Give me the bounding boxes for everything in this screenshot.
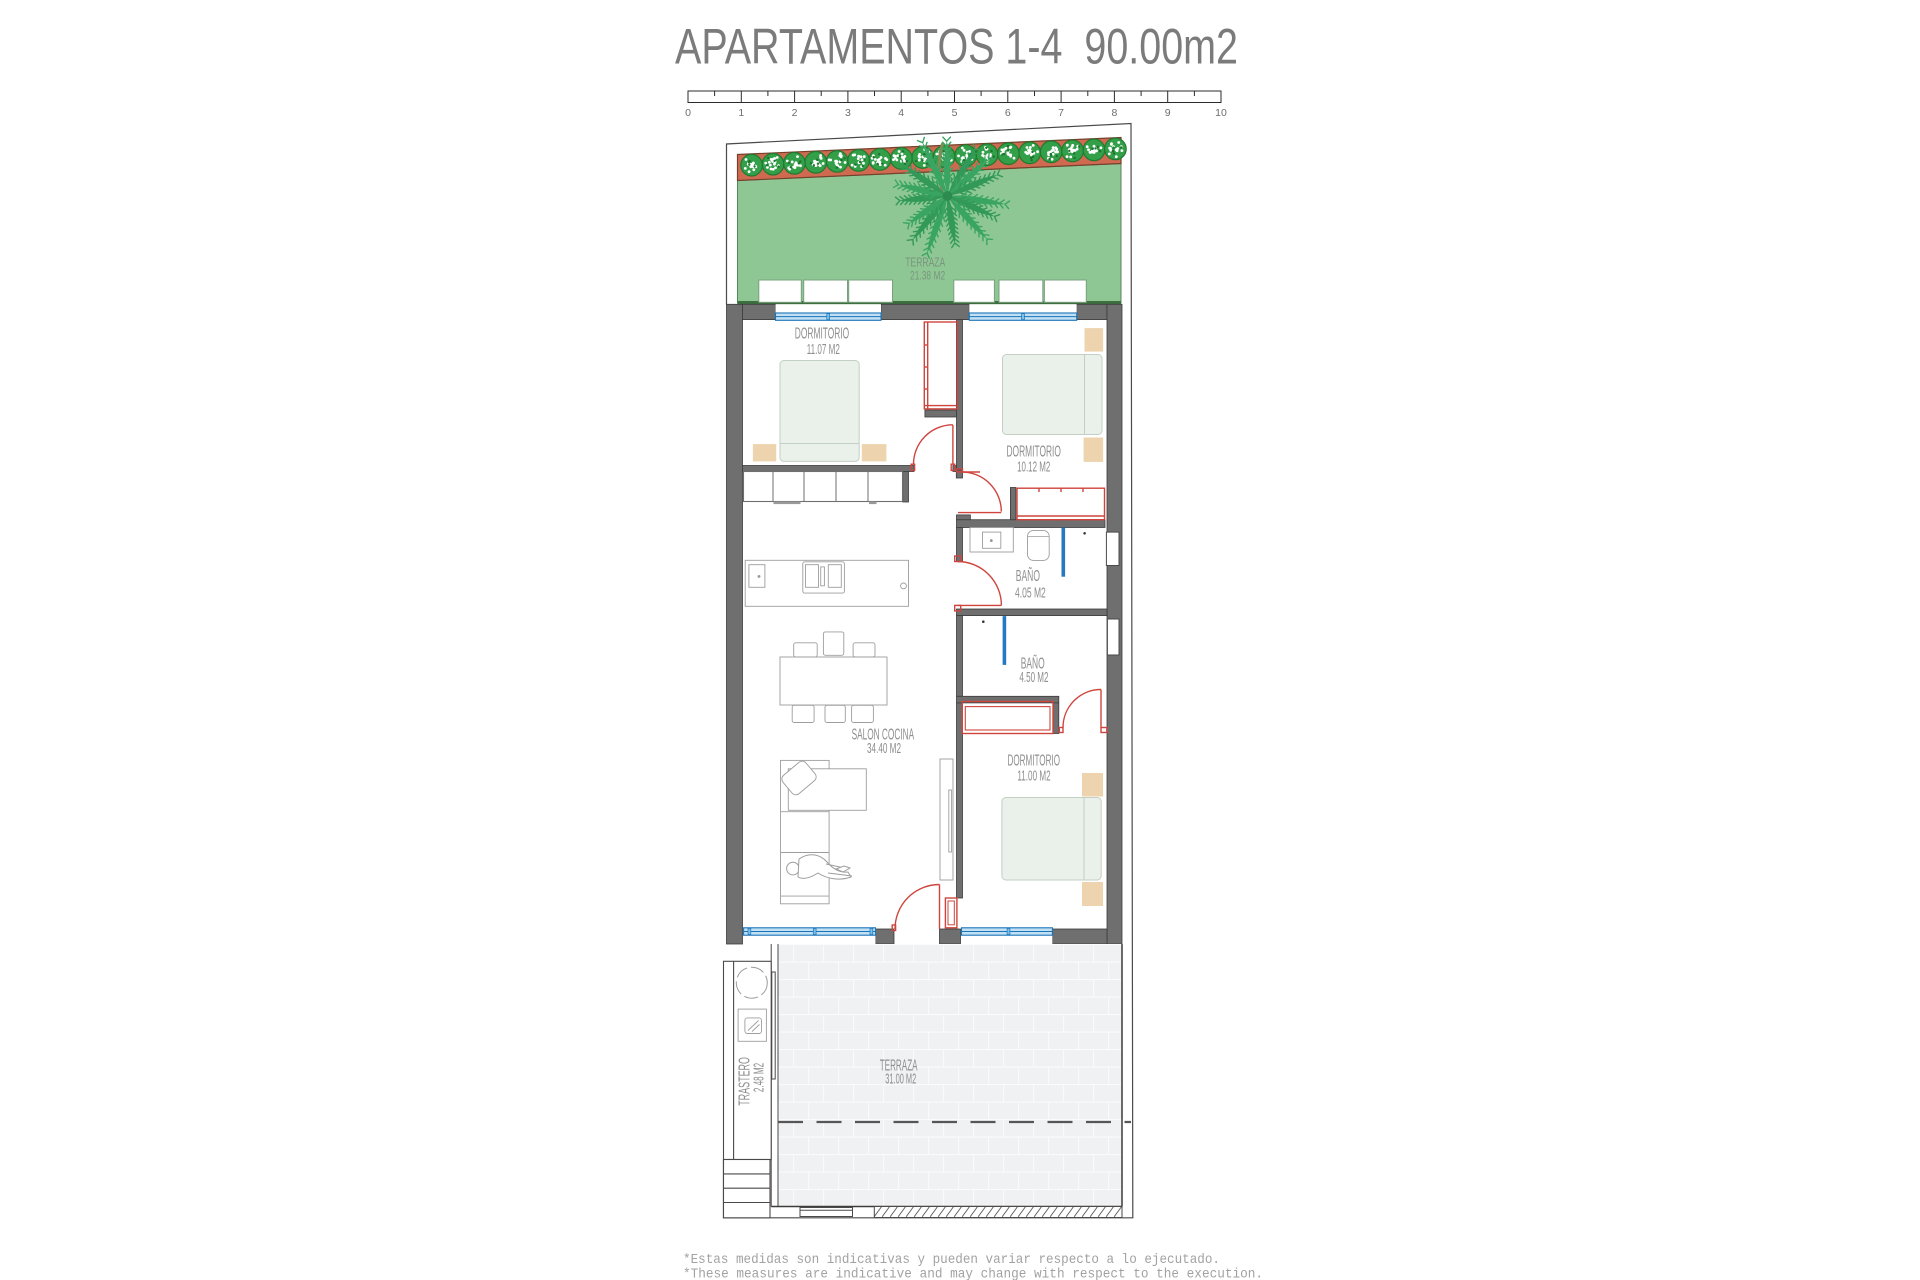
svg-text:9: 9 bbox=[1165, 107, 1171, 119]
svg-text:DORMITORIO: DORMITORIO bbox=[1007, 444, 1061, 461]
svg-text:APARTAMENTOS 1-4 90.00m2: APARTAMENTOS 1-4 90.00m2 bbox=[675, 19, 1238, 75]
svg-text:4.05 M2: 4.05 M2 bbox=[1015, 586, 1046, 602]
svg-text:4: 4 bbox=[898, 107, 904, 119]
svg-text:7: 7 bbox=[1058, 107, 1064, 119]
svg-text:BAÑO: BAÑO bbox=[1016, 568, 1040, 585]
svg-text:3: 3 bbox=[845, 107, 851, 119]
svg-text:10.12 M2: 10.12 M2 bbox=[1017, 459, 1050, 475]
svg-text:21.38 M2: 21.38 M2 bbox=[910, 268, 945, 282]
svg-text:11.07 M2: 11.07 M2 bbox=[807, 342, 840, 358]
svg-text:4.50 M2: 4.50 M2 bbox=[1019, 670, 1048, 686]
svg-text:8: 8 bbox=[1111, 107, 1117, 119]
svg-text:11.00 M2: 11.00 M2 bbox=[1017, 769, 1050, 785]
svg-text:2: 2 bbox=[792, 107, 798, 119]
svg-text:6: 6 bbox=[1005, 107, 1011, 119]
svg-text:10: 10 bbox=[1215, 107, 1227, 119]
svg-text:DORMITORIO: DORMITORIO bbox=[1008, 753, 1061, 770]
svg-text:TRASTERO: TRASTERO bbox=[737, 1057, 754, 1106]
svg-text:0: 0 bbox=[685, 107, 691, 119]
svg-text:*These measures are indicative: *These measures are indicative and may c… bbox=[683, 1267, 1263, 1280]
svg-text:31.00 M2: 31.00 M2 bbox=[885, 1072, 916, 1088]
svg-text:34.40 M2: 34.40 M2 bbox=[867, 741, 901, 757]
svg-text:1: 1 bbox=[738, 107, 744, 119]
svg-text:5: 5 bbox=[952, 107, 958, 119]
svg-text:2.48 M2: 2.48 M2 bbox=[752, 1063, 768, 1092]
svg-text:DORMITORIO: DORMITORIO bbox=[795, 326, 849, 343]
